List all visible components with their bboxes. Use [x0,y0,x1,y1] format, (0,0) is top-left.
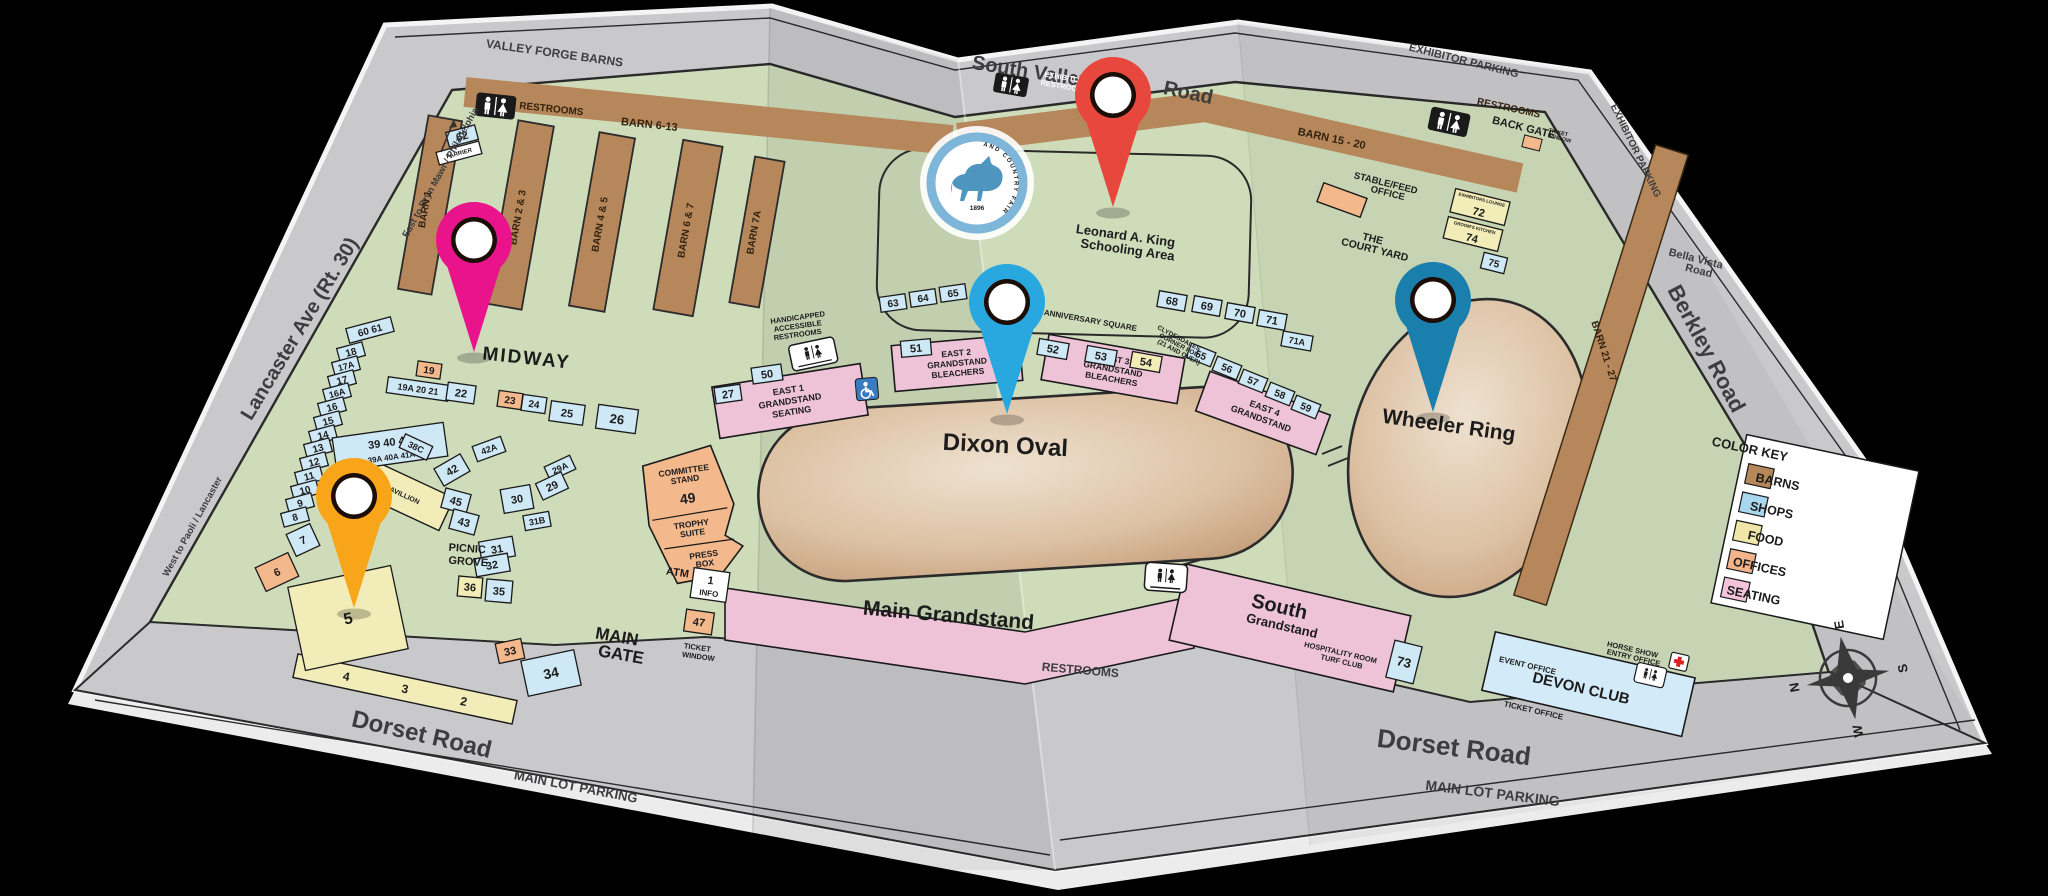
map-box-label: 51 [909,342,922,355]
map-box-label: 65 [947,288,960,301]
map-box-label: 19 [423,365,436,378]
grandstand-restrooms-sign [1144,562,1188,593]
map-box-35: 35 [485,579,513,603]
map-box-22: 22 [446,382,476,404]
map-box-19: 19 [416,361,442,379]
map-box-label: 25 [560,407,574,421]
map-box-23: 23 [497,390,523,409]
map-box-label: 35 [492,585,505,598]
map-box-label: 68 [1165,295,1179,309]
map-box-label: 30 [510,493,524,507]
map-box-36: 36 [457,576,483,598]
map-box-label: 71 [1265,314,1279,328]
wheelchair-access-icon [855,377,879,401]
map-box-26: 26 [596,404,639,433]
map-box-label: 53 [1094,350,1108,364]
map-box-label: 24 [528,399,541,412]
map-box-label: 26 [609,411,625,428]
map-box-27: 27 [714,384,742,403]
logo-year: 1896 [970,205,985,212]
restrooms-icon-left [475,92,517,120]
map-box-label: 47 [692,616,706,630]
map-box-24: 24 [521,394,547,413]
map-box-50: 50 [751,364,783,384]
map-box-label: 22 [454,387,468,401]
map-box-label: 50 [760,368,774,382]
map-box-label: 33 [503,645,517,659]
committee-number: 49 [679,489,697,507]
map-box-1: 1INFO [690,568,730,603]
map-box-64: 64 [909,289,937,307]
fairgrounds-map: EAST 1 GRANDSTAND SEATING EAST 2 GRANDST… [0,0,2048,896]
map-box-label: 52 [1046,343,1060,357]
map-box-63: 63 [879,294,907,312]
map-box-51: 51 [900,339,931,358]
map-box-label: 27 [721,388,735,402]
map-box-65: 65 [939,284,967,302]
map-box-label: 70 [1233,307,1247,321]
map-box-47: 47 [684,609,715,635]
first-aid-icon [1668,652,1689,672]
map-box-label: 64 [917,293,930,306]
map-box-label: 63 [887,298,900,311]
map-box-25: 25 [549,401,585,426]
map-box-label: 23 [504,395,517,408]
map-box-30: 30 [500,485,534,514]
fairgrounds-map-screenshot: EAST 1 GRANDSTAND SEATING EAST 2 GRANDST… [0,0,2048,896]
map-box-label: 36 [463,581,476,594]
map-box-label: 69 [1200,300,1214,314]
